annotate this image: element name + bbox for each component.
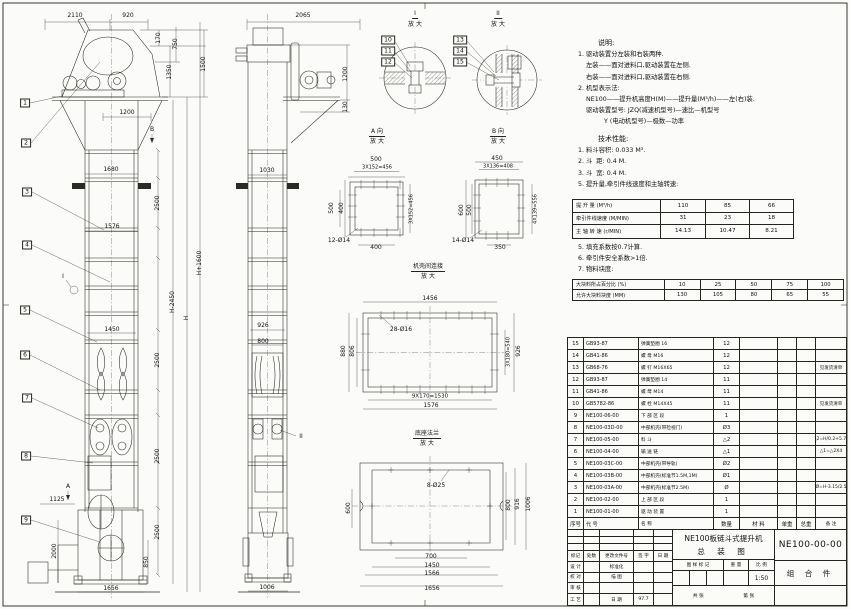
table-cell [797, 434, 816, 445]
title-block: 标记处数更改文件号签 字日 期设 计标准化校 对描 图审 核工 艺日 期97.7… [567, 529, 847, 606]
table-cell [654, 573, 672, 583]
table-cell [740, 458, 778, 469]
table-cell: 下 部 区 段 [639, 410, 714, 421]
table-row: 13GB68-76螺 钉 M16X6512见发货清单 [568, 362, 846, 374]
table-cell: △2=H/0.2+5.75 [816, 434, 846, 445]
table-row: 14GB41-86螺 母 M1612 [568, 350, 846, 362]
table-cell [778, 470, 797, 481]
text-line: 右装——面对进料口,驱动装置在右侧. [578, 72, 844, 83]
table-cell [778, 434, 797, 445]
table-cell [797, 410, 816, 421]
table-cell [797, 374, 816, 385]
table-cell: 1 [568, 506, 584, 517]
table-cell: 中部机壳(标准节2.5M) [639, 482, 714, 493]
table-cell: 料 斗 [639, 434, 714, 445]
text-line: 驱动装置型号: JZQ(减速机型号)—速比—机型号 [578, 105, 844, 116]
title-area: NE100板链斗式提升机 总 装 图 图 样 标 记 重 量 比 例 1:50 … [673, 530, 775, 605]
dim-label: 1200 [343, 66, 349, 81]
table-cell: 提 升 量 (M³/h) [573, 200, 661, 212]
table-cell: 12 [714, 338, 740, 349]
drawing-number-area: NE100-00-00 组 合 件 [775, 530, 846, 605]
table-cell [778, 410, 797, 421]
table-cell [816, 422, 846, 433]
notes-section: 说明: 1. 驱动装置分左装和右装两种. 左装——面对进料口,驱动装置在左侧. … [578, 38, 844, 128]
table-cell [740, 506, 778, 517]
dim-label: 130 [343, 101, 349, 112]
leader-ref-number: 13 [453, 36, 467, 45]
table-cell [634, 583, 654, 593]
dim-label: 1350 [167, 64, 173, 79]
leader-ref-number: 10 [381, 36, 395, 45]
parts-list-table: 15GB93-87弹簧垫圈 161214GB41-86螺 母 M161213GB… [567, 337, 847, 531]
table-cell [797, 458, 816, 469]
table-cell: 11 [568, 386, 584, 397]
leader-ref-number: 8 [21, 452, 31, 461]
text-line: 5. 提升量,牵引件线速度和主轴转速: [578, 179, 844, 190]
dim-label: 880 [341, 345, 347, 356]
table-cell [797, 482, 816, 493]
table-cell: 见发货清单 [816, 398, 846, 409]
dim-label: II [494, 11, 502, 19]
table-cell [740, 338, 778, 349]
dim-label: 1006 [259, 585, 274, 591]
table-cell: 1 [714, 506, 740, 517]
table-cell: 牵引件线速度 (M/MIN) [573, 213, 661, 225]
text-line: 7. 物料块度: [578, 264, 844, 275]
table-cell: 12 [568, 374, 584, 385]
table-cell: 弹簧垫圈 14 [639, 374, 714, 385]
dim-label: 2500 [155, 195, 161, 210]
table-cell: GB41-86 [584, 350, 639, 361]
table-cell: 5 [568, 458, 584, 469]
dim-label: 2065 [295, 13, 310, 19]
table-cell: 签 字 [634, 551, 654, 561]
table-cell [740, 434, 778, 445]
dim-label: H+1600 [197, 251, 203, 276]
table-cell: 螺 母 M14 [639, 386, 714, 397]
table-cell: 14 [568, 350, 584, 361]
dim-label: II [299, 434, 303, 440]
dim-label: 750 [173, 38, 179, 49]
table-cell [816, 410, 846, 421]
table-cell: 85 [706, 200, 750, 212]
table-cell: 8.21 [750, 225, 793, 238]
table-cell [778, 338, 797, 349]
dim-label: 1200 [119, 110, 134, 116]
table-cell: 65 [772, 290, 808, 300]
dim-label: 1680 [103, 167, 118, 173]
table-cell: 66 [750, 200, 793, 212]
table-cell: 螺 母 M16 [639, 350, 714, 361]
drawing-number: NE100-00-00 [775, 530, 846, 561]
leader-ref-number: 3 [22, 188, 32, 197]
table-cell [778, 482, 797, 493]
table-cell [816, 350, 846, 361]
table-row: 1NE100-01-00驱 动 装 置1 [568, 506, 846, 518]
table-cell: 描 图 [600, 573, 634, 583]
notes-lines: 1. 驱动装置分左装和右装两种. 左装——面对进料口,驱动装置在左侧. 右装——… [578, 49, 844, 127]
weight-label: 重 量 [724, 560, 749, 570]
mark-boxes-row: 1:50 [673, 571, 774, 586]
table-cell: 更改文件号 [600, 551, 634, 561]
dim-label: 3X180=540 [507, 337, 512, 367]
table-cell: 1 [714, 494, 740, 505]
dim-label: 800 [257, 339, 268, 345]
table-row: 5NE100-03C-00中部机壳(带导轨)Ø2 [568, 458, 846, 470]
table-cell: 50 [736, 280, 772, 289]
revision-empty-row [568, 537, 672, 544]
dim-label: H-2450 [170, 291, 176, 313]
table-cell: 14.13 [661, 225, 706, 238]
dim-label: 14-Ø14 [452, 238, 474, 244]
table-cell [797, 470, 816, 481]
table-cell: 输 送 链 [639, 446, 714, 457]
table-cell: Ø [714, 482, 740, 493]
table-cell [740, 470, 778, 481]
dim-label: 926 [516, 345, 522, 356]
table-cell: △2 [714, 434, 740, 445]
table-cell: 6 [568, 446, 584, 457]
table-cell: 中部机壳(带导轨) [639, 458, 714, 469]
dim-label: 800 [506, 499, 512, 510]
dim-label: 2500 [155, 524, 161, 539]
table-row: 2NE100-02-00上 部 区 段1 [568, 494, 846, 506]
table-cell: 螺 栓 M14X45 [639, 398, 714, 409]
product-name: NE100板链斗式提升机 [673, 532, 774, 545]
table-cell [816, 506, 846, 517]
table-cell [816, 494, 846, 505]
table-cell [740, 374, 778, 385]
table-cell [740, 362, 778, 373]
table-cell: 7 [568, 434, 584, 445]
table-cell [634, 573, 654, 583]
table-cell: 100 [808, 280, 843, 289]
table-row: 6NE100-04-00输 送 链△1△1=△2X4 [568, 446, 846, 458]
table-cell: 弹簧垫圈 16 [639, 338, 714, 349]
dim-label: 机壳间连接 [411, 264, 445, 272]
table-cell [816, 458, 846, 469]
table-cell: 10 [665, 280, 701, 289]
dim-label: 放 大 [408, 22, 422, 28]
table-cell: 驱 动 装 置 [639, 506, 714, 517]
sheet-number-label: 第 张 [743, 592, 754, 599]
dim-label: 1006 [526, 496, 532, 511]
table-cell: 上 部 区 段 [639, 494, 714, 505]
dim-label: 400 [370, 245, 381, 251]
table-cell: 11 [714, 398, 740, 409]
dim-label: 28-Ø16 [390, 327, 412, 333]
lump-size-table: 大块料所占百分比 (%)10255075100允许大块料块度 (MM)13010… [572, 279, 844, 301]
dim-label: 底座法兰 [413, 431, 441, 439]
table-cell: 螺 钉 M16X65 [639, 362, 714, 373]
revision-empty-row [568, 530, 672, 537]
table-cell: 105 [701, 290, 737, 300]
table-cell [740, 446, 778, 457]
table-cell [584, 583, 600, 593]
tech-title: 技术性能: [578, 134, 844, 145]
table-cell: 3 [568, 482, 584, 493]
table-row: 11GB41-86螺 母 M1411 [568, 386, 846, 398]
table-cell: 97.7 [634, 594, 654, 605]
sheet-total-label: 共 张 [693, 592, 704, 599]
scale-label: 比 例 [749, 560, 774, 570]
table-cell: NE100-05-00 [584, 434, 639, 445]
dim-label: 350 [494, 245, 505, 251]
table-cell [740, 482, 778, 493]
text-line: 5. 填充系数按0.7计算. [578, 242, 844, 253]
dim-label: 3X152=456 [410, 194, 415, 224]
dim-label: A [66, 484, 70, 490]
table-row: 8NE100-03D-00中部机壳(带检视门)Ø3 [568, 422, 846, 434]
dim-label: 500 [370, 157, 381, 163]
table-cell [778, 458, 797, 469]
dim-label: 1450 [104, 327, 119, 333]
table-cell [797, 506, 816, 517]
table-cell: 25 [701, 280, 737, 289]
table-cell: 12 [714, 350, 740, 361]
text-line: 1. 料斗容积: 0.033 M³. [578, 145, 844, 156]
table-row: 主 轴 转 速 (r/MIN)14.1310.478.21 [573, 225, 793, 238]
table-cell [797, 446, 816, 457]
table-cell: NE100-04-00 [584, 446, 639, 457]
table-cell: NE100-06-00 [584, 410, 639, 421]
dim-label: 1500 [201, 56, 207, 71]
dim-label: 500 [467, 204, 473, 215]
tech-items-before: 1. 料斗容积: 0.033 M³.2. 斗 距: 0.4 M.3. 斗 宽: … [578, 145, 844, 190]
dim-label: 1656 [103, 586, 118, 592]
table-cell: 11 [714, 374, 740, 385]
table-row: 工 艺日 期97.7 [568, 594, 672, 605]
table-row: 审 核 [568, 583, 672, 594]
leader-ref-number: 2 [21, 139, 31, 148]
tech-items-after: 5. 填充系数按0.7计算.6. 牵引件安全系数>1倍.7. 物料块度: [578, 242, 844, 276]
speed-table: 提 升 量 (M³/h)1108566牵引件线速度 (M/MIN)312318主… [572, 199, 794, 239]
dim-label: 920 [122, 13, 133, 19]
table-cell: 2 [568, 494, 584, 505]
dim-label: 1450 [424, 563, 439, 569]
table-cell [778, 422, 797, 433]
table-cell: 审 核 [568, 583, 584, 593]
table-cell: Ø1 [714, 470, 740, 481]
revision-empty-row [568, 544, 672, 551]
table-cell: 日 期 [654, 551, 672, 561]
table-row: 大块料所占百分比 (%)10255075100 [573, 280, 843, 290]
dim-label: 500 [329, 202, 335, 213]
table-cell [740, 398, 778, 409]
table-row: 允许大块料块度 (MM)130105806555 [573, 290, 843, 300]
table-cell [816, 338, 846, 349]
table-cell: NE100-03A-00 [584, 482, 639, 493]
dim-label: 1030 [259, 168, 274, 174]
table-cell: GB93-87 [584, 374, 639, 385]
dim-label: 1456 [422, 296, 437, 302]
drawing-sheet: 211092012170750135015001200B168025003157… [0, 0, 850, 609]
leader-ref-number: 6 [20, 351, 30, 360]
dim-label: 3X152=456 [362, 166, 392, 171]
table-cell [654, 583, 672, 593]
table-cell [816, 470, 846, 481]
leader-ref-number: 7 [22, 394, 32, 403]
scale-value: 1:50 [749, 571, 774, 585]
table-cell [778, 446, 797, 457]
table-cell [797, 350, 816, 361]
table-cell: 设 计 [568, 562, 584, 572]
dim-label: 600 [459, 204, 465, 215]
empty-cell [775, 586, 846, 605]
table-row: 15GB93-87弹簧垫圈 1612 [568, 338, 846, 350]
notes-title: 说明: [578, 38, 844, 49]
table-cell [654, 594, 672, 605]
table-row: 牵引件线速度 (M/MIN)312318 [573, 213, 793, 226]
table-cell [797, 494, 816, 505]
dim-label: 1576 [104, 224, 119, 230]
dim-label: 2000 [52, 543, 58, 558]
table-cell [740, 386, 778, 397]
leader-ref-number: 11 [381, 47, 395, 56]
table-cell: 允许大块料块度 (MM) [573, 290, 665, 300]
table-cell [816, 386, 846, 397]
table-cell: 主 轴 转 速 (r/MIN) [573, 225, 661, 238]
table-cell: 日 期 [600, 594, 634, 605]
table-cell [797, 362, 816, 373]
table-cell: △1 [714, 446, 740, 457]
dim-label: 2500 [155, 448, 161, 463]
dim-label: 1576 [423, 403, 438, 409]
table-cell [778, 506, 797, 517]
table-cell: 标准化 [600, 562, 634, 572]
table-cell: 18 [750, 213, 793, 225]
table-cell: 23 [706, 213, 750, 225]
text-line: 左装——面对进料口,驱动装置在左侧. [578, 60, 844, 71]
revision-sign-area: 标记处数更改文件号签 字日 期设 计标准化校 对描 图审 核工 艺日 期97.7 [568, 530, 673, 605]
table-cell: NE100-01-00 [584, 506, 639, 517]
dim-label: 1566 [424, 571, 439, 577]
table-cell: 大块料所占百分比 (%) [573, 280, 665, 289]
dim-label: 12-Ø14 [328, 238, 350, 244]
table-cell [797, 398, 816, 409]
dim-label: I [412, 11, 418, 19]
table-cell: 1 [714, 410, 740, 421]
dim-label: 850 [144, 556, 150, 567]
table-cell [634, 562, 654, 572]
table-cell: GB93-87 [584, 338, 639, 349]
leader-ref-number: 12 [381, 58, 395, 67]
table-row: 4NE100-03B-00中部机壳(标准节1.5M,1M)Ø1 [568, 470, 846, 482]
table-cell [600, 583, 634, 593]
dim-label: A 向 [369, 129, 385, 137]
mark-label: 图 样 标 记 [673, 560, 724, 570]
text-line: 2. 斗 距: 0.4 M. [578, 156, 844, 167]
dim-label: 9X170=1530 [412, 394, 448, 400]
table-cell: 10 [568, 398, 584, 409]
table-cell: 55 [808, 290, 843, 300]
signature-table: 标记处数更改文件号签 字日 期设 计标准化校 对描 图审 核工 艺日 期97.7 [568, 551, 672, 605]
text-line: 3. 斗 宽: 0.4 M. [578, 168, 844, 179]
dim-label: I [62, 274, 64, 280]
sheet-count-row: 共 张 第 张 [673, 586, 774, 605]
dim-label: 1656 [424, 586, 439, 592]
table-row: 10GB5782-86螺 栓 M14X4511见发货清单 [568, 398, 846, 410]
dim-label: 放 大 [421, 274, 435, 280]
dim-label: 600 [346, 502, 352, 513]
table-row: 3NE100-03A-00中部机壳(标准节2.5M)ØØ=H-3.15/2.5 [568, 482, 846, 494]
table-cell [778, 386, 797, 397]
leader-ref-number: 1 [20, 99, 30, 108]
dim-label: H [184, 316, 190, 321]
table-cell [778, 350, 797, 361]
table-cell: 处数 [584, 551, 600, 561]
table-cell: 110 [661, 200, 706, 212]
table-cell: 31 [661, 213, 706, 225]
dim-label: 170 [156, 32, 162, 43]
table-cell [740, 494, 778, 505]
table-cell [740, 410, 778, 421]
table-row: 12GB93-87弹簧垫圈 1411 [568, 374, 846, 386]
table-cell [778, 362, 797, 373]
dim-label: 放 大 [491, 139, 505, 145]
table-cell: NE100-03B-00 [584, 470, 639, 481]
table-cell: 12 [714, 362, 740, 373]
table-cell [797, 386, 816, 397]
table-cell: 见发货清单 [816, 362, 846, 373]
dim-label: 926 [257, 323, 268, 329]
leader-ref-number: 4 [22, 241, 32, 250]
table-cell: 80 [736, 290, 772, 300]
table-row: 提 升 量 (M³/h)1108566 [573, 200, 793, 213]
table-cell: 中部机壳(带检视门) [639, 422, 714, 433]
dim-label: 2110 [67, 13, 82, 19]
table-cell: Ø2 [714, 458, 740, 469]
text-line: 1. 驱动装置分左装和右装两种. [578, 49, 844, 60]
table-cell: Ø=H-3.15/2.5 [816, 482, 846, 493]
dim-label: 3X136=408 [483, 165, 513, 170]
dim-label: 700 [425, 554, 436, 560]
table-cell: 9 [568, 410, 584, 421]
table-cell [654, 562, 672, 572]
table-row: 9NE100-06-00下 部 区 段1 [568, 410, 846, 422]
dim-label: 放 大 [370, 139, 384, 145]
leader-ref-number: 15 [453, 58, 467, 67]
dim-label: 4X139=556 [534, 194, 539, 224]
table-cell: GB68-76 [584, 362, 639, 373]
table-cell: NE100-03C-00 [584, 458, 639, 469]
table-cell [816, 374, 846, 385]
table-row: 设 计标准化 [568, 562, 672, 573]
table-cell: 75 [772, 280, 808, 289]
dim-label: 450 [491, 156, 502, 162]
table-cell [797, 338, 816, 349]
table-cell [740, 350, 778, 361]
text-line: 6. 牵引件安全系数>1倍. [578, 253, 844, 264]
tech-section: 技术性能: 1. 料斗容积: 0.033 M³.2. 斗 距: 0.4 M.3.… [578, 134, 844, 190]
drawing-name: 总 装 图 [673, 545, 774, 558]
text-line: NE100——提升机高度H(M)——提升量(M³/h)——左(右)装. [578, 94, 844, 105]
table-cell: 工 艺 [568, 594, 584, 605]
table-cell: Ø3 [714, 422, 740, 433]
leader-ref-number: 5 [20, 306, 30, 315]
table-cell: △1=△2X4 [816, 446, 846, 457]
dim-label: 400 [339, 202, 345, 213]
dim-label: 806 [350, 345, 356, 356]
table-cell: NE100-02-00 [584, 494, 639, 505]
table-cell: 13 [568, 362, 584, 373]
table-row: 校 对描 图 [568, 573, 672, 584]
text-line: 2. 机型表示法: [578, 83, 844, 94]
table-row: 标记处数更改文件号签 字日 期 [568, 551, 672, 562]
table-cell: 4 [568, 470, 584, 481]
dim-label: 1125 [49, 497, 64, 503]
table-cell: 11 [714, 386, 740, 397]
